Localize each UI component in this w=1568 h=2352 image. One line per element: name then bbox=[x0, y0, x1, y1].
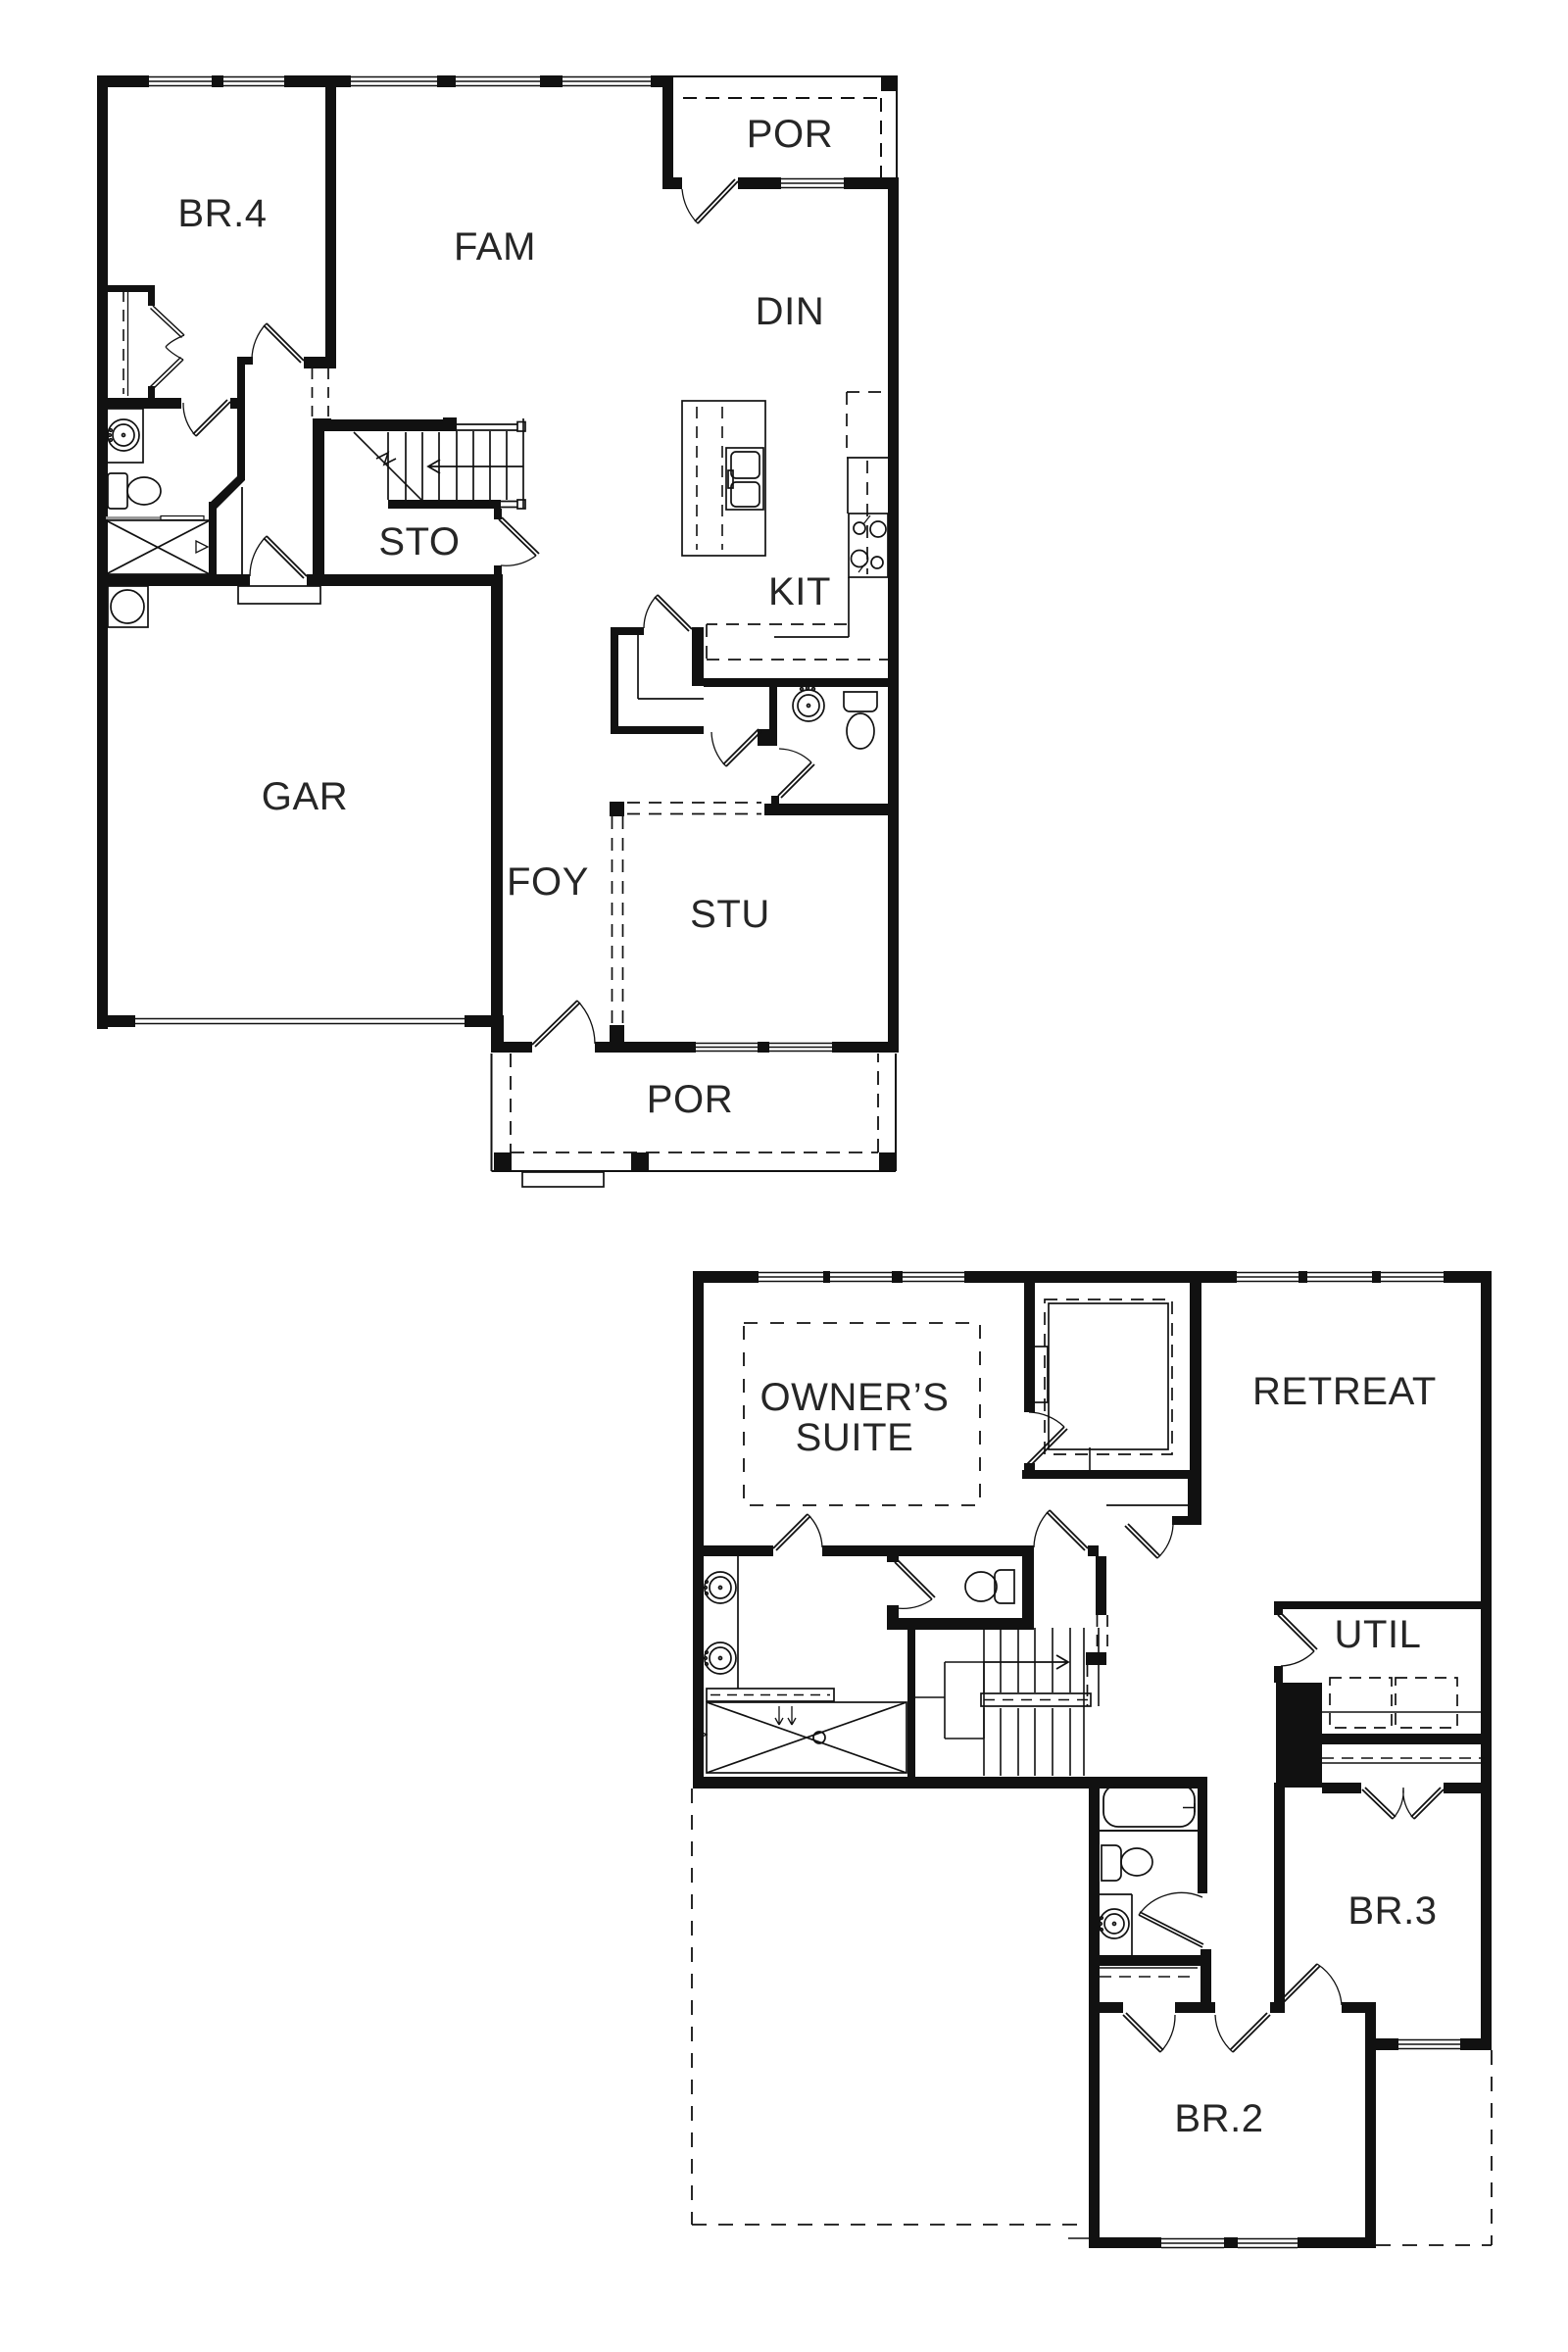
svg-text:BR.2: BR.2 bbox=[1174, 2097, 1263, 2140]
svg-text:FAM: FAM bbox=[454, 225, 536, 269]
svg-text:POR: POR bbox=[647, 1078, 733, 1121]
svg-text:STO: STO bbox=[378, 520, 460, 563]
svg-text:UTIL: UTIL bbox=[1334, 1613, 1421, 1656]
svg-text:KIT: KIT bbox=[768, 570, 831, 613]
svg-text:STU: STU bbox=[690, 893, 770, 936]
svg-text:GAR: GAR bbox=[262, 775, 348, 818]
svg-text:BR.4: BR.4 bbox=[177, 192, 267, 235]
svg-text:OWNER’S: OWNER’S bbox=[759, 1376, 949, 1419]
svg-text:BR.3: BR.3 bbox=[1347, 1889, 1437, 1933]
svg-text:POR: POR bbox=[747, 113, 833, 156]
svg-text:FOY: FOY bbox=[507, 860, 589, 904]
svg-text:DIN: DIN bbox=[756, 290, 825, 333]
svg-text:SUITE: SUITE bbox=[796, 1416, 914, 1459]
svg-text:RETREAT: RETREAT bbox=[1252, 1370, 1437, 1413]
